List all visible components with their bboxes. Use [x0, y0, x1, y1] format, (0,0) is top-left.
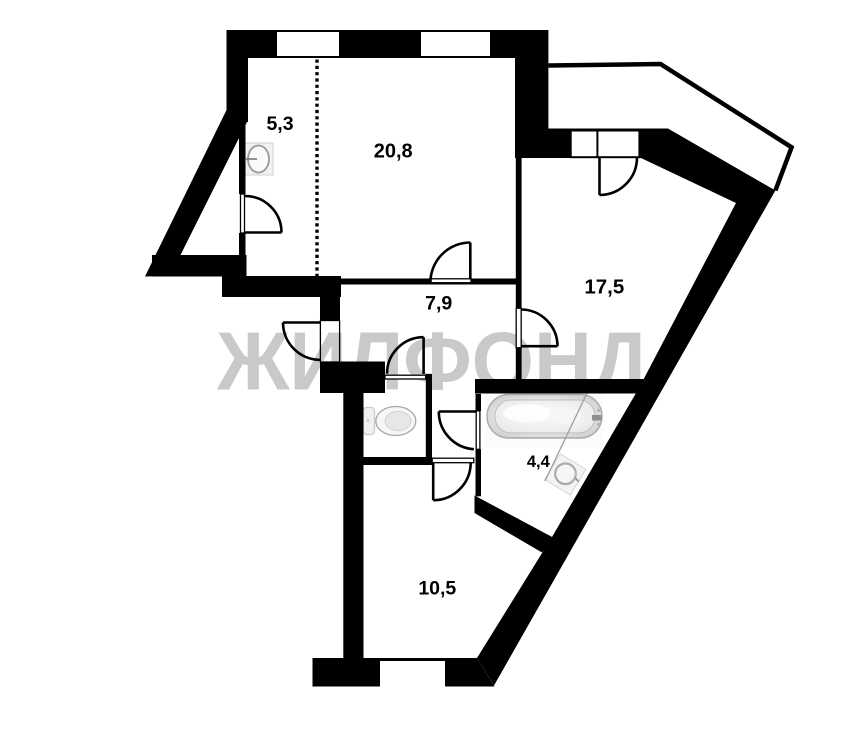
- svg-text:17,5: 17,5: [584, 276, 624, 299]
- svg-text:4,4: 4,4: [527, 453, 551, 471]
- svg-text:10,5: 10,5: [418, 577, 456, 599]
- svg-text:7,9: 7,9: [425, 293, 452, 315]
- svg-text:20,8: 20,8: [374, 141, 413, 163]
- svg-text:5,3: 5,3: [266, 113, 293, 135]
